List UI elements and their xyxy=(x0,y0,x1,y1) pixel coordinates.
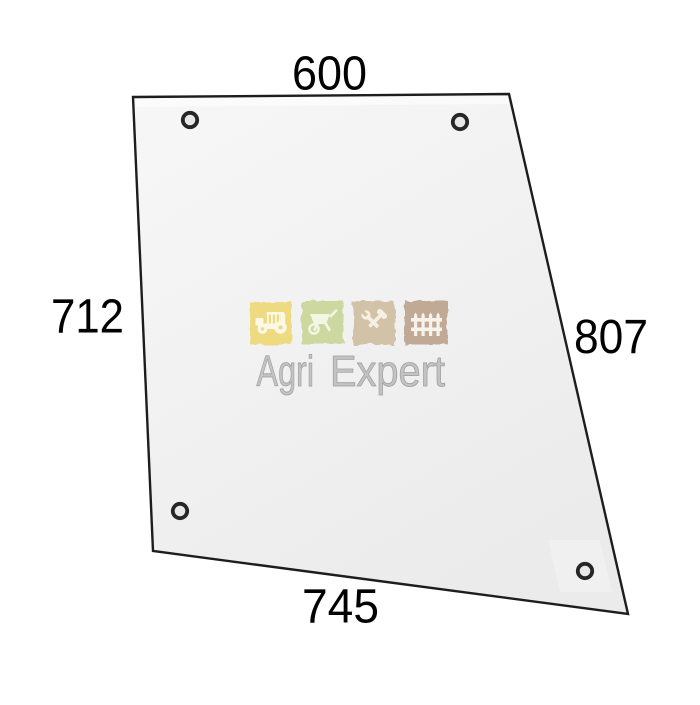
svg-text:807: 807 xyxy=(574,311,648,364)
svg-text:600: 600 xyxy=(292,48,367,101)
svg-text:745: 745 xyxy=(302,581,379,634)
svg-text:712: 712 xyxy=(51,291,124,344)
svg-text:Expert: Expert xyxy=(330,347,445,396)
svg-text:Agri: Agri xyxy=(257,347,315,396)
